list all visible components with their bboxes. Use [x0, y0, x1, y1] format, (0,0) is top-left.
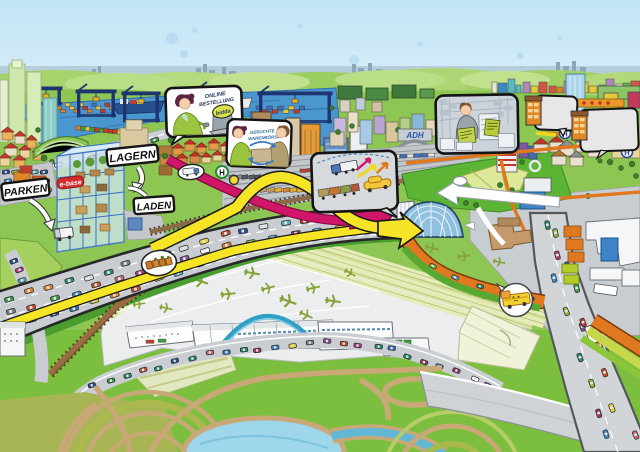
svg-text:ADH: ADH: [405, 131, 424, 140]
svg-text:H: H: [219, 169, 225, 178]
